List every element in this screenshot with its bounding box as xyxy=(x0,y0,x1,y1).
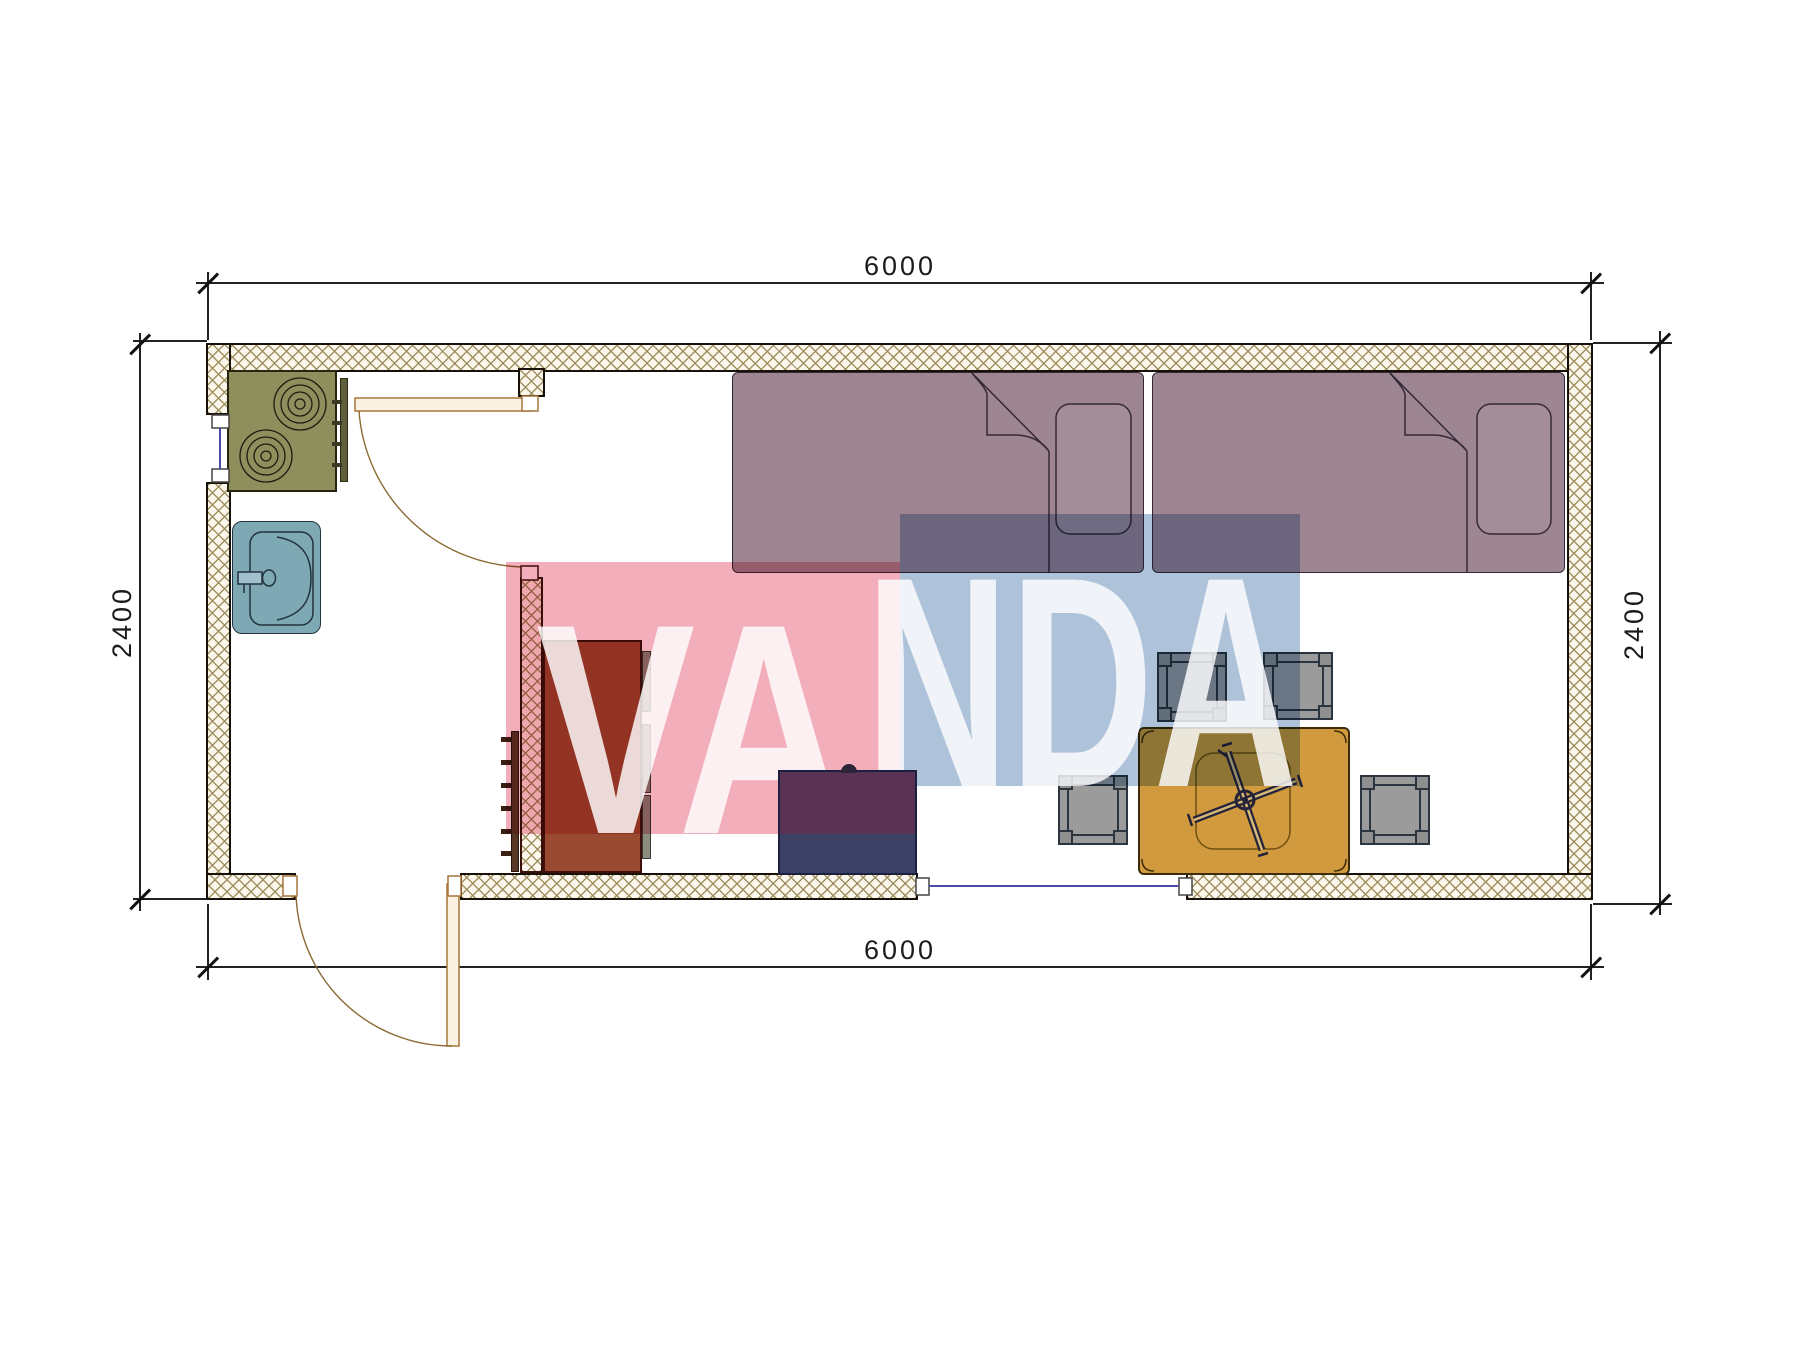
cabinet-knob xyxy=(841,764,857,773)
navy-cabinet xyxy=(778,770,917,875)
floor-plan-canvas: VA NDA 6000 6000 2400 2400 xyxy=(0,0,1800,1350)
watermark-text: VA NDA xyxy=(0,0,1800,1350)
watermark-text-blue-part: NDA xyxy=(865,514,1298,850)
